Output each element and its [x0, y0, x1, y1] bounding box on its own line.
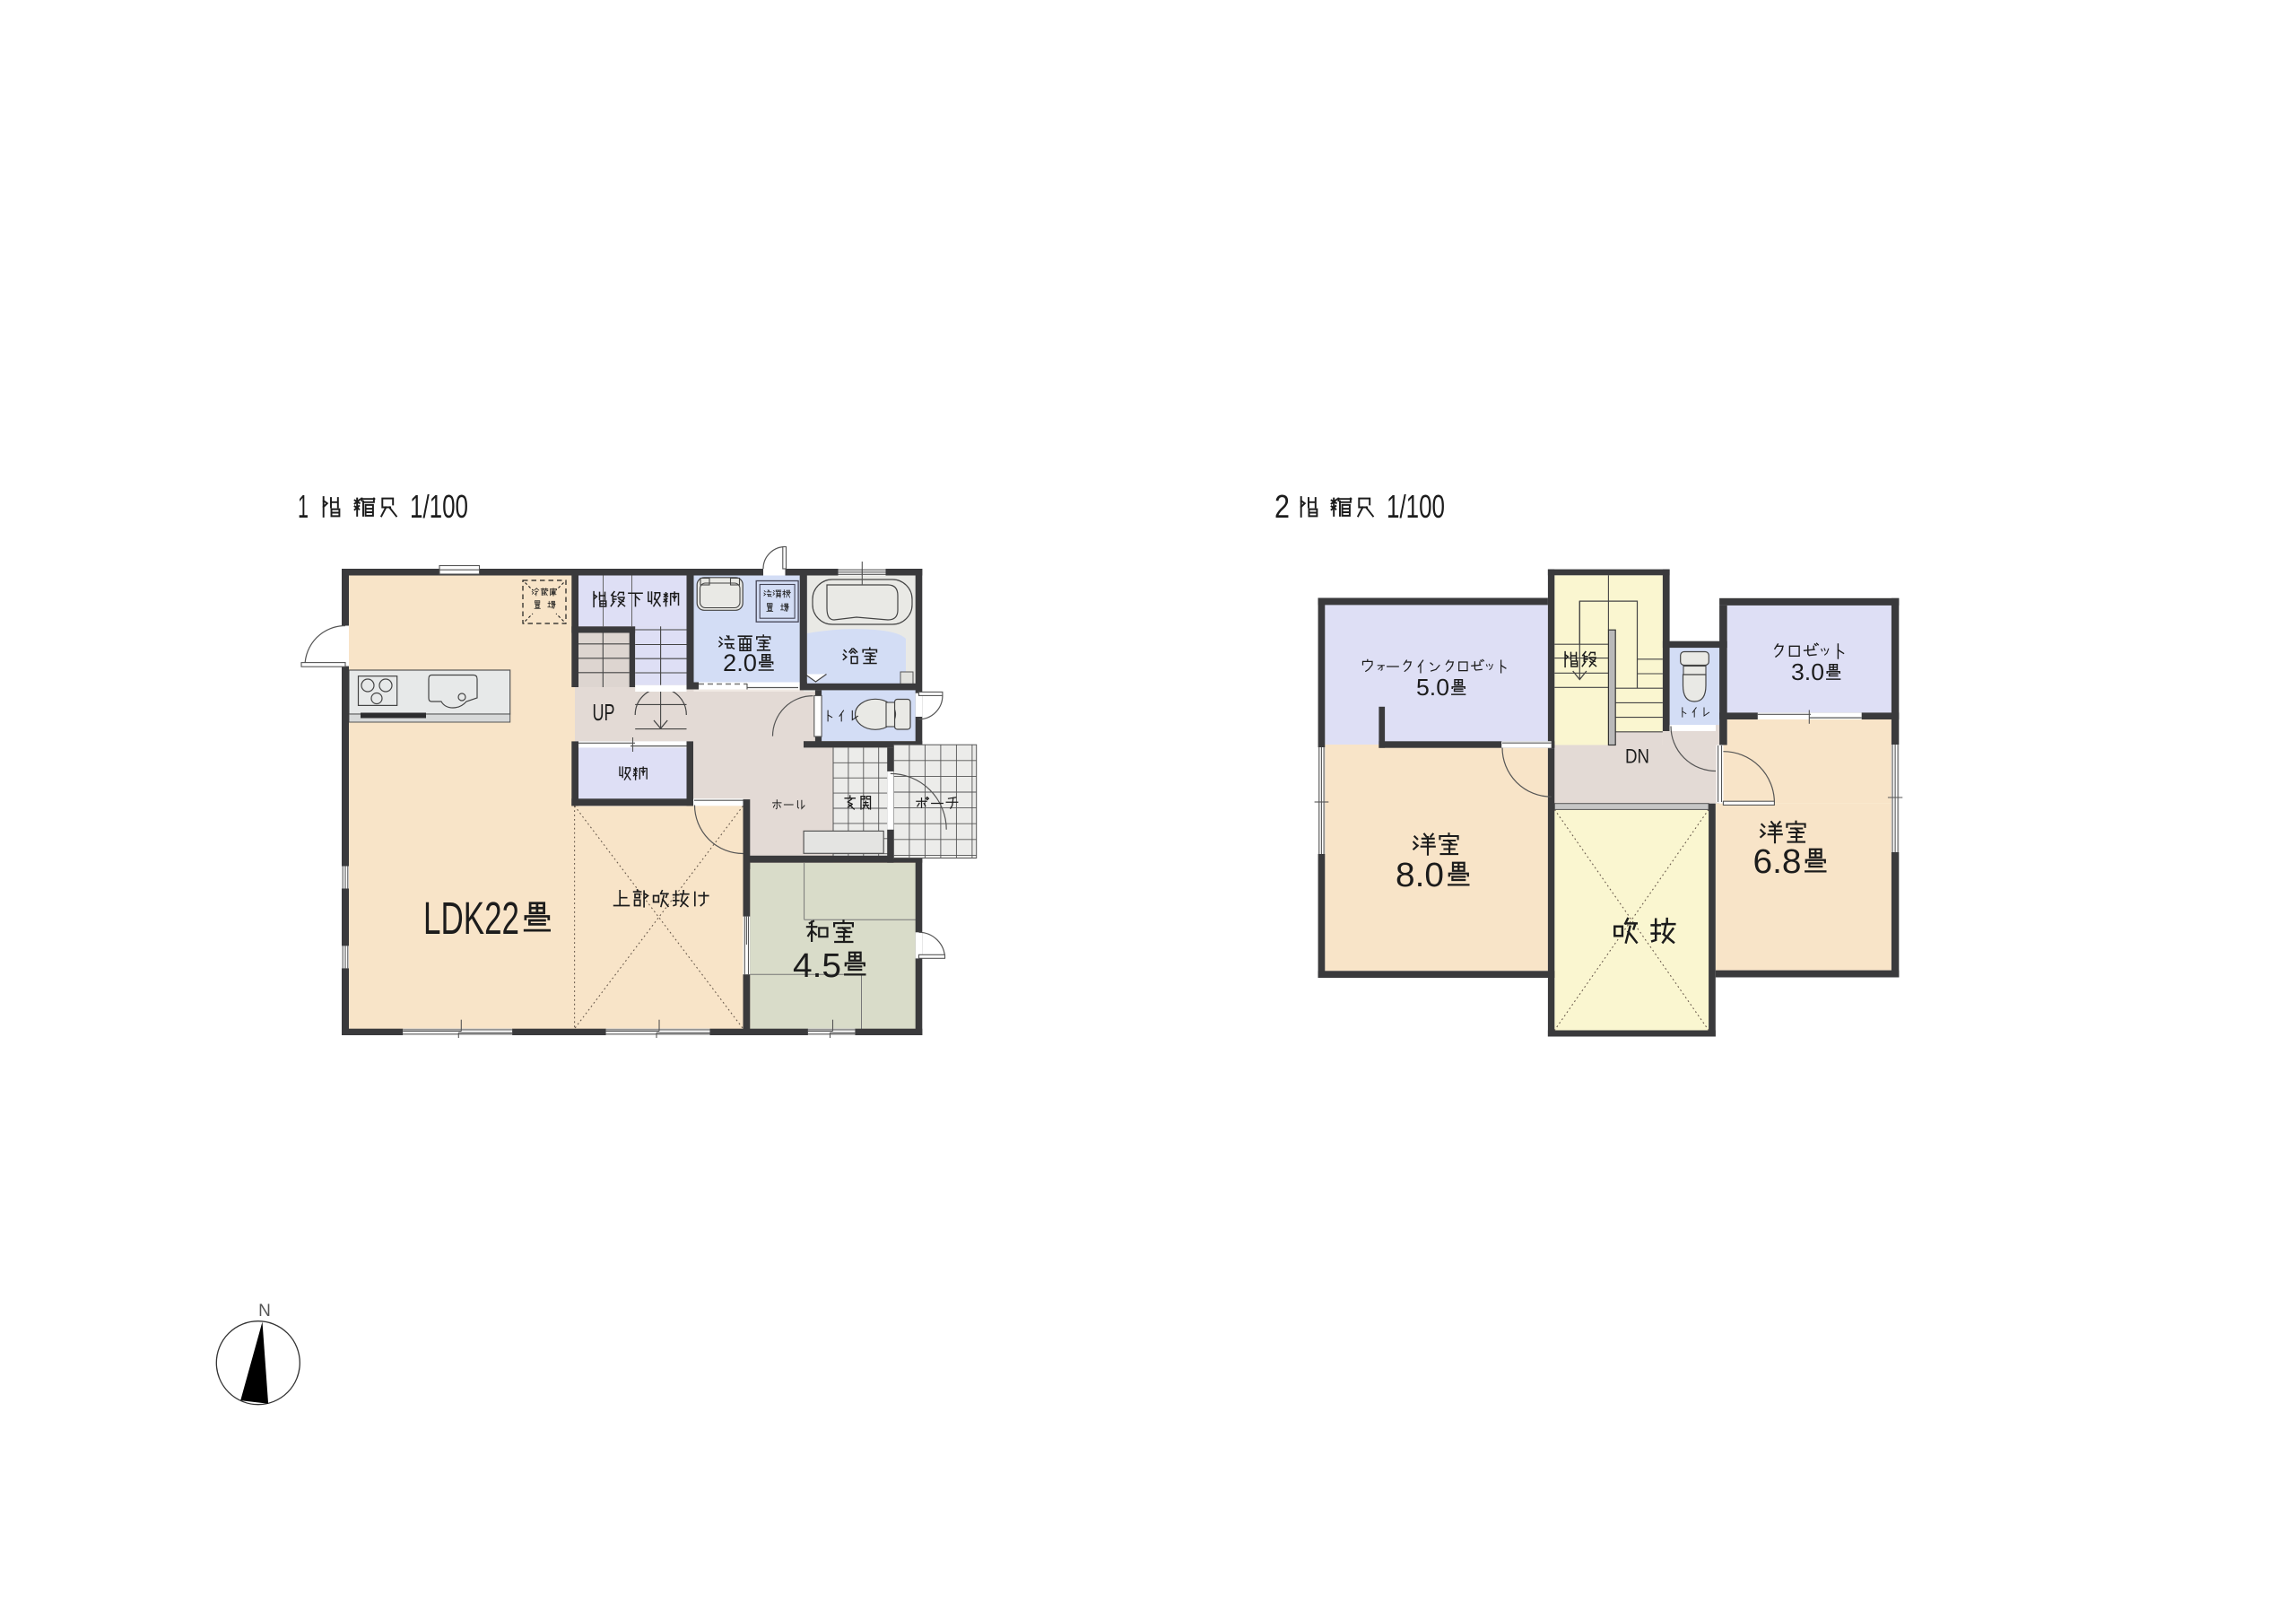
svg-text:UP: UP: [593, 699, 615, 726]
svg-text:4.5: 4.5: [793, 947, 841, 985]
svg-text:8.0: 8.0: [1396, 857, 1444, 894]
svg-text:DN: DN: [1625, 745, 1649, 768]
svg-text:3.0: 3.0: [1791, 658, 1824, 685]
svg-text:2: 2: [1274, 488, 1290, 525]
svg-text:1/100: 1/100: [1387, 488, 1445, 525]
svg-text:1: 1: [298, 488, 309, 525]
svg-text:LDK22: LDK22: [423, 893, 519, 944]
svg-text:2.0: 2.0: [723, 649, 757, 676]
svg-text:N: N: [258, 1302, 271, 1320]
svg-text:6.8: 6.8: [1753, 843, 1802, 881]
svg-text:5.0: 5.0: [1416, 674, 1449, 701]
svg-text:1/100: 1/100: [410, 488, 468, 525]
